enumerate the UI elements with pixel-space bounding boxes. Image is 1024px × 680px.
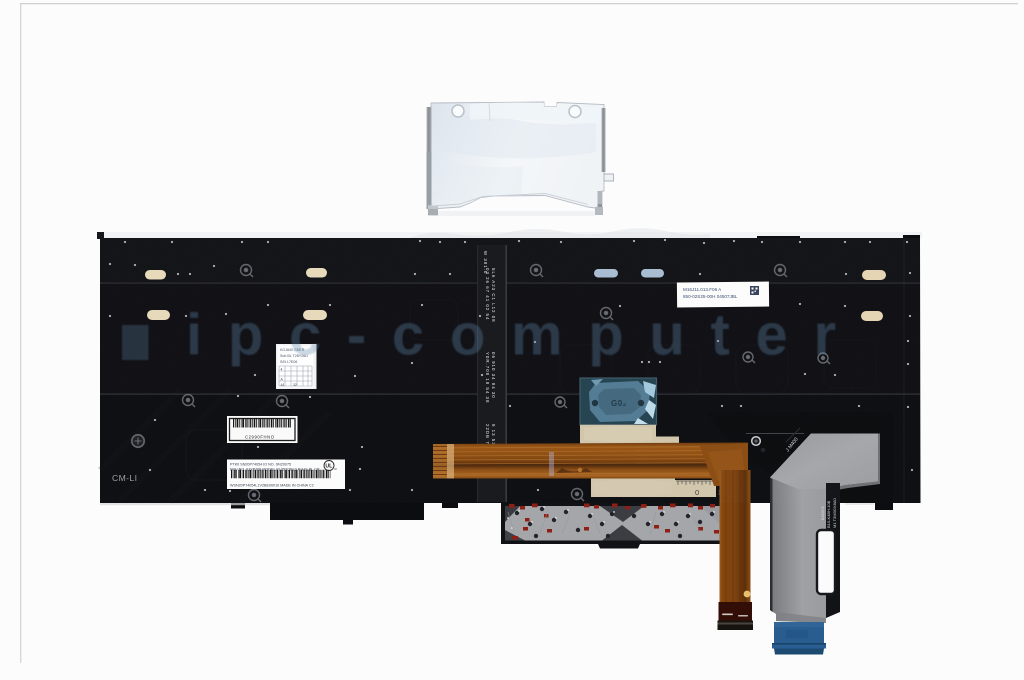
svg-text:ipc-computer: ipc-computer	[186, 303, 862, 368]
svg-text:B10-K4BH-10B: B10-K4BH-10B	[826, 500, 831, 528]
svg-text:B1505 B: B1505 B	[821, 506, 825, 520]
